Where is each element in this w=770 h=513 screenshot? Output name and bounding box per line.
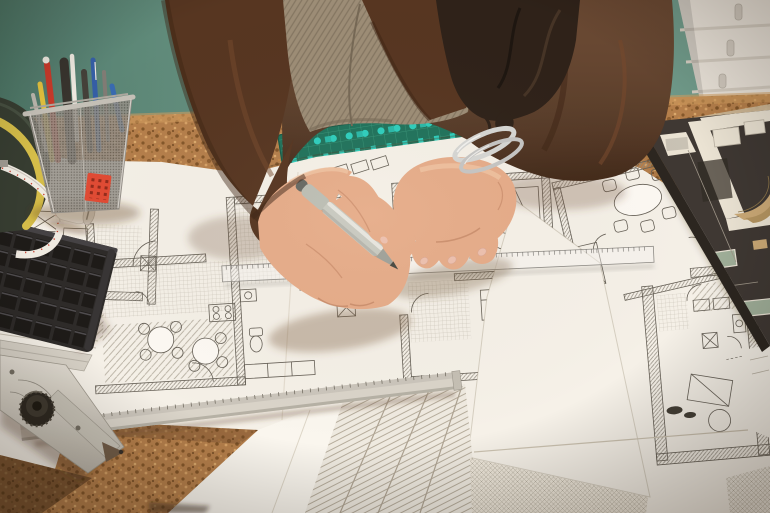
vignette-overlay bbox=[0, 0, 770, 513]
architect-photo: Architect drawing on floor plan blueprin… bbox=[0, 0, 770, 513]
photo-canvas: Architect drawing on floor plan blueprin… bbox=[0, 0, 770, 513]
